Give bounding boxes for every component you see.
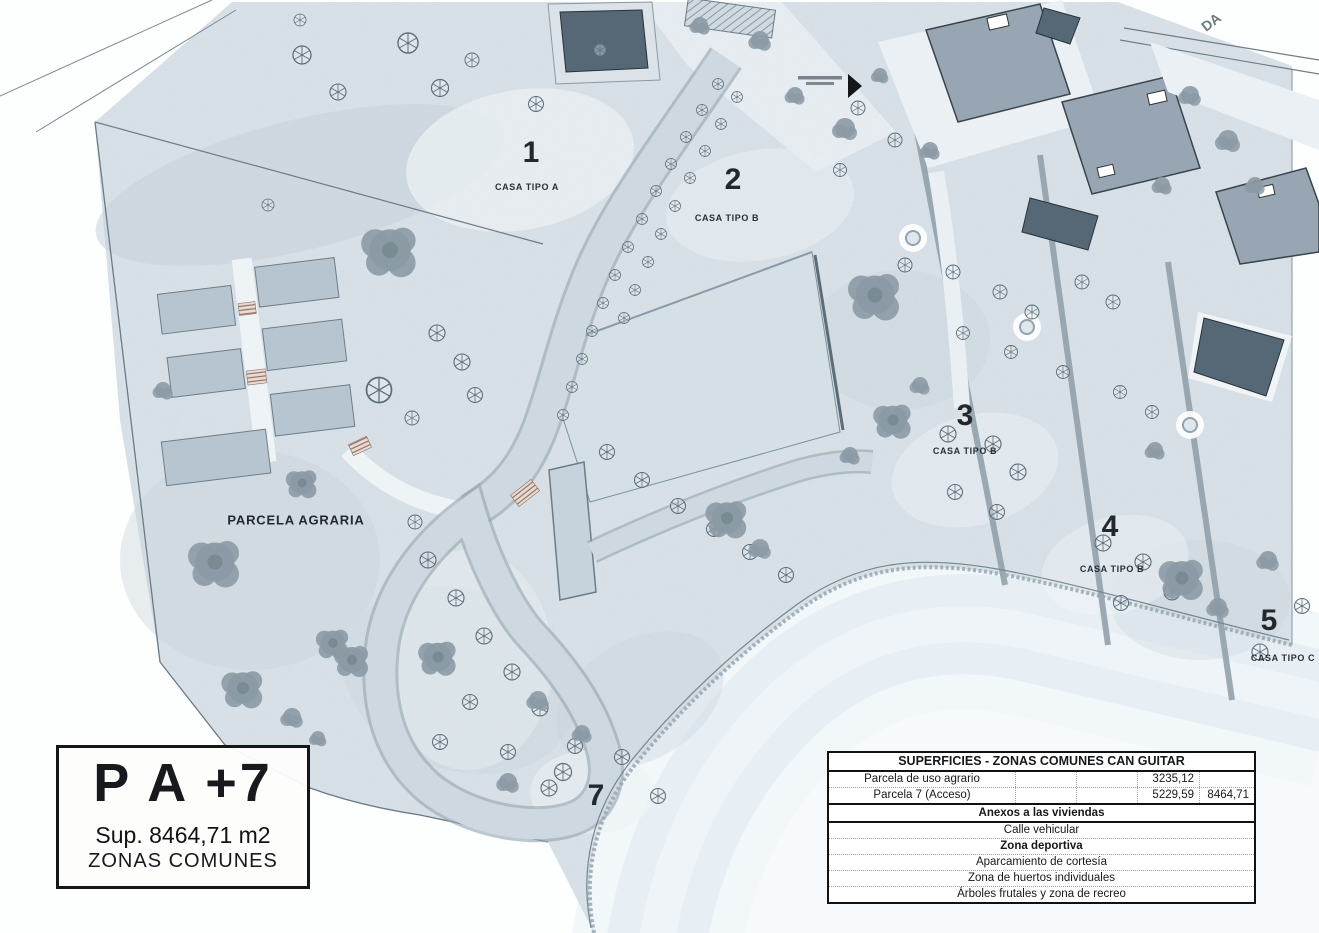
row-value: 5229,59	[1137, 788, 1199, 803]
table-row: Parcela de uso agrario 3235,12	[829, 772, 1254, 788]
annex-row: Zona de huertos individuales	[829, 871, 1254, 887]
row-label: Parcela de uso agrario	[829, 772, 1015, 787]
row-label: Parcela 7 (Acceso)	[829, 788, 1015, 803]
parcel-number-4: 4	[1102, 510, 1119, 544]
plan-area: Sup. 8464,71 m2	[59, 822, 307, 848]
top-pool	[548, 2, 660, 84]
agrarian-parcel-label: PARCELA AGRARIA	[227, 513, 364, 528]
site-plan-sheet: { "title_block": { "code": "P A +7", "ar…	[0, 0, 1319, 933]
annex-row: Zona deportiva	[829, 839, 1254, 855]
title-block: P A +7 Sup. 8464,71 m2 ZONAS COMUNES	[56, 745, 310, 889]
row-total: 8464,71	[1199, 788, 1254, 803]
parcel-number-7: 7	[588, 779, 605, 813]
parcel-number-2: 2	[725, 163, 742, 197]
annex-row: Árboles frutales y zona de recreo	[829, 887, 1254, 902]
row-cell	[1015, 772, 1076, 787]
surfaces-table-title: SUPERFICIES - ZONAS COMUNES CAN GUITAR	[829, 753, 1254, 772]
parcel-type-5: CASA TIPO C	[1251, 653, 1315, 663]
parcel-type-2: CASA TIPO B	[695, 213, 759, 223]
annex-row: Calle vehicular	[829, 823, 1254, 839]
table-section-header: Anexos a las viviendas	[829, 805, 1254, 823]
parcel-type-3: CASA TIPO B	[933, 446, 997, 456]
parcel-type-4: CASA TIPO B	[1080, 564, 1144, 574]
row-cell	[1076, 788, 1137, 803]
plan-code: P A +7	[59, 752, 307, 814]
surfaces-table: SUPERFICIES - ZONAS COMUNES CAN GUITAR P…	[827, 751, 1256, 904]
tiny-annotation-line	[798, 76, 842, 80]
annex-row: Aparcamiento de cortesía	[829, 855, 1254, 871]
plot-stairs	[246, 369, 267, 385]
plan-zone: ZONAS COMUNES	[59, 849, 307, 873]
parcel-type-1: CASA TIPO A	[495, 182, 559, 192]
tiny-annotation-line	[806, 82, 834, 85]
row-total	[1199, 772, 1254, 787]
parcel-number-3: 3	[957, 399, 974, 433]
row-value: 3235,12	[1137, 772, 1199, 787]
row-cell	[1076, 772, 1137, 787]
table-row: Parcela 7 (Acceso) 5229,59 8464,71	[829, 788, 1254, 805]
parcel-number-5: 5	[1261, 604, 1278, 638]
parcel-number-1: 1	[523, 136, 540, 170]
plot-stairs	[238, 302, 256, 316]
row-cell	[1015, 788, 1076, 803]
